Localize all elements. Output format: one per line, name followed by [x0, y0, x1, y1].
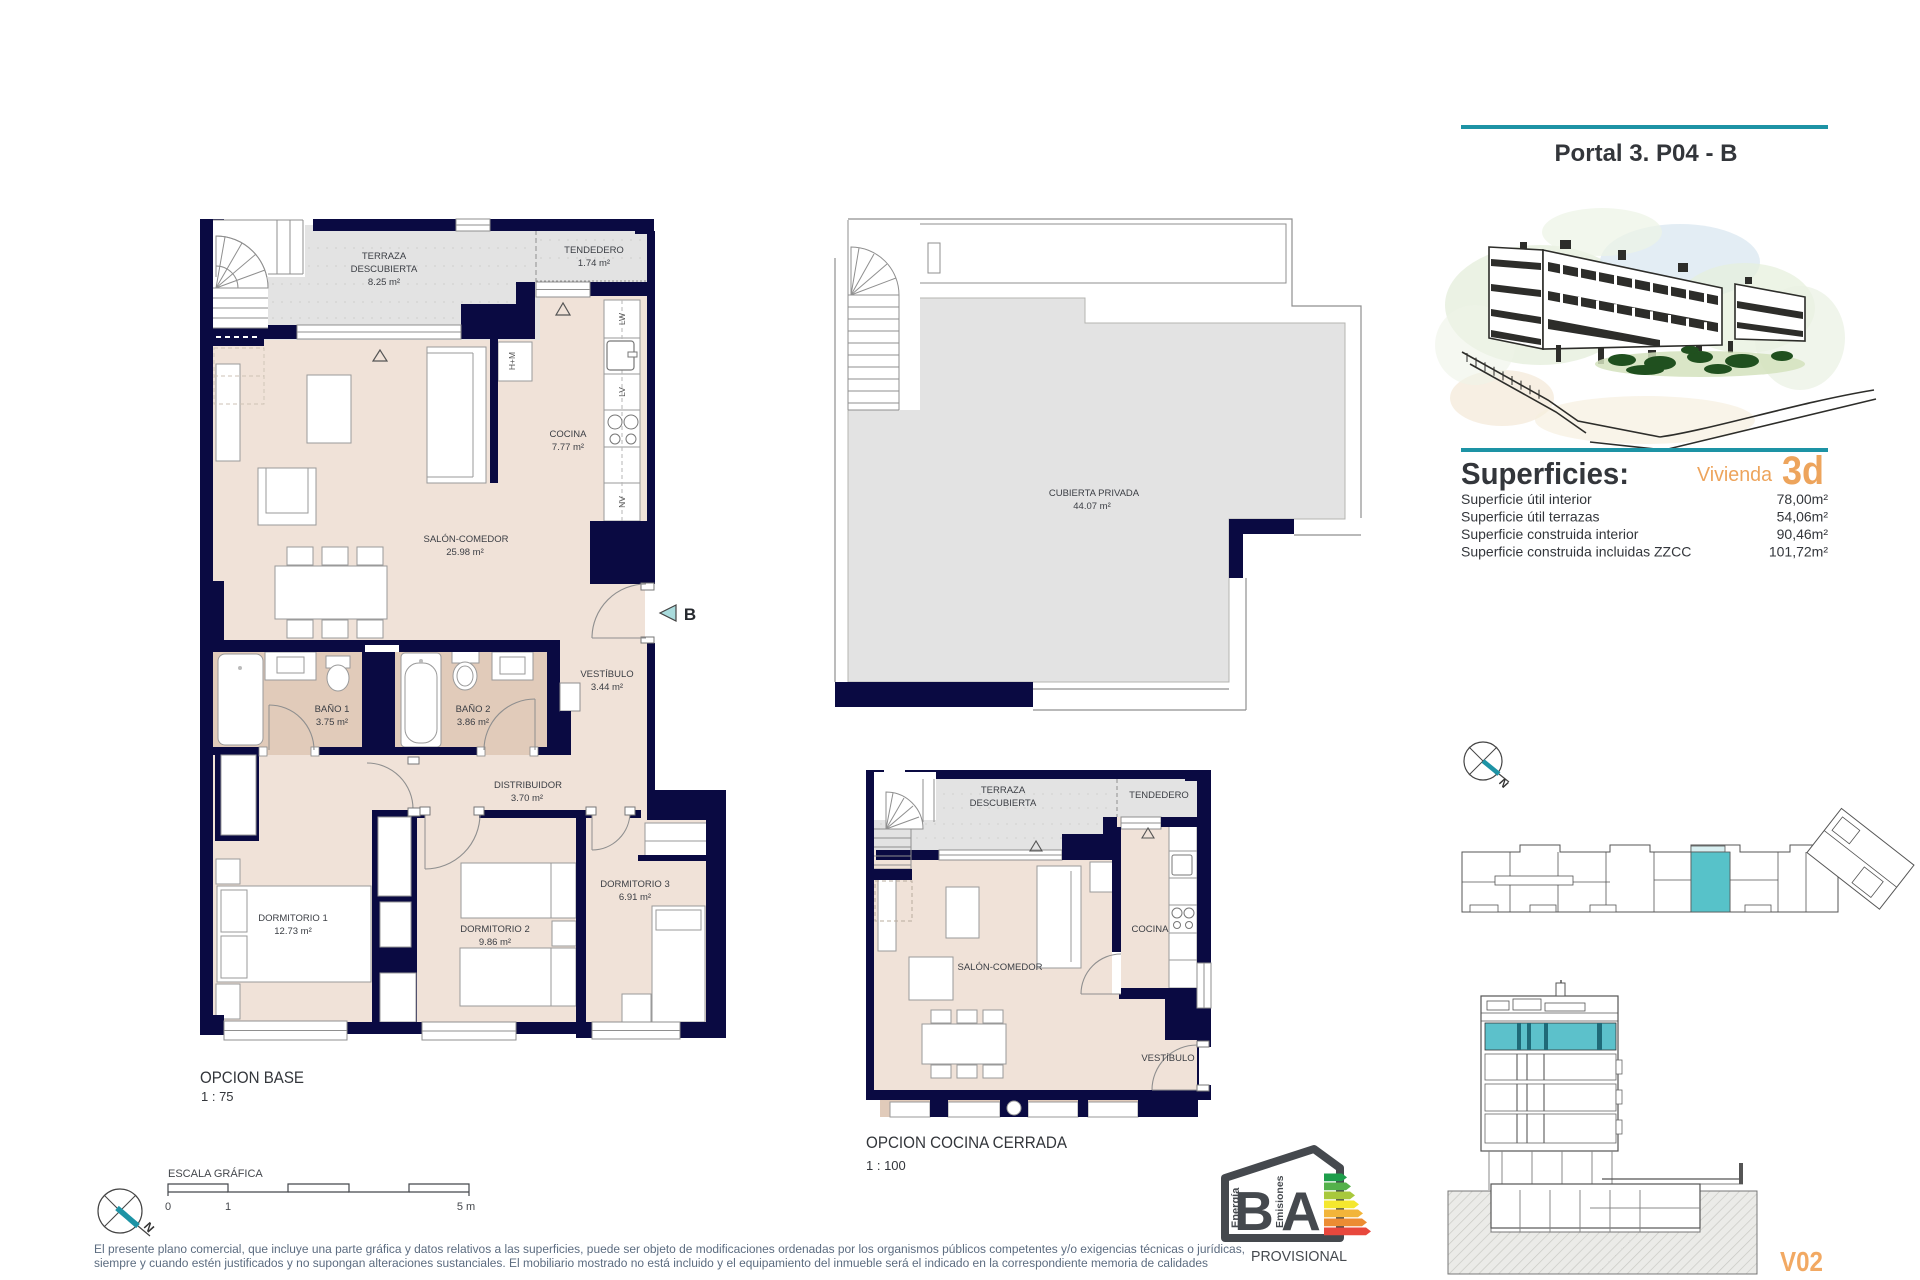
svg-text:3.75 m²: 3.75 m²: [316, 717, 348, 728]
svg-text:12.73 m²: 12.73 m²: [274, 926, 312, 937]
svg-text:ESCALA GRÁFICA: ESCALA GRÁFICA: [168, 1167, 263, 1180]
svg-text:8.25 m²: 8.25 m²: [368, 277, 400, 288]
svg-text:SALÓN-COMEDOR: SALÓN-COMEDOR: [958, 962, 1043, 973]
svg-text:54,06m²: 54,06m²: [1777, 509, 1829, 525]
svg-text:OPCION BASE: OPCION BASE: [200, 1068, 304, 1087]
svg-text:Energía: Energía: [1230, 1187, 1242, 1228]
svg-text:COCINA: COCINA: [1132, 924, 1170, 935]
svg-text:COCINA: COCINA: [550, 429, 588, 440]
svg-text:9.86 m²: 9.86 m²: [479, 937, 511, 948]
svg-text:1 : 75: 1 : 75: [201, 1089, 234, 1104]
svg-text:Superficie construida incluida: Superficie construida incluidas ZZCC: [1461, 544, 1691, 560]
svg-text:Emisiones: Emisiones: [1274, 1175, 1286, 1228]
svg-text:1.74 m²: 1.74 m²: [578, 258, 610, 269]
svg-text:DESCUBIERTA: DESCUBIERTA: [970, 798, 1037, 809]
svg-text:78,00m²: 78,00m²: [1777, 491, 1829, 507]
svg-text:1: 1: [225, 1201, 231, 1213]
svg-text:DORMITORIO 1: DORMITORIO 1: [258, 913, 328, 924]
svg-text:TERRAZA: TERRAZA: [981, 785, 1026, 796]
svg-text:101,72m²: 101,72m²: [1769, 544, 1828, 560]
svg-text:TENDEDERO: TENDEDERO: [564, 245, 624, 256]
svg-text:0: 0: [165, 1201, 171, 1213]
svg-text:3.44 m²: 3.44 m²: [591, 682, 623, 693]
svg-text:SALÓN-COMEDOR: SALÓN-COMEDOR: [424, 534, 509, 545]
svg-text:V02: V02: [1780, 1246, 1823, 1277]
svg-text:LV: LV: [617, 387, 627, 397]
svg-text:NV: NV: [617, 496, 627, 508]
svg-text:BAÑO 2: BAÑO 2: [456, 704, 491, 715]
svg-text:44.07 m²: 44.07 m²: [1073, 501, 1111, 512]
svg-text:H+M: H+M: [507, 352, 517, 370]
svg-text:TERRAZA: TERRAZA: [362, 251, 407, 262]
svg-text:DESCUBIERTA: DESCUBIERTA: [351, 264, 418, 275]
svg-text:DISTRIBUIDOR: DISTRIBUIDOR: [494, 780, 562, 791]
svg-text:3d: 3d: [1782, 449, 1824, 493]
svg-text:25.98 m²: 25.98 m²: [446, 547, 484, 558]
svg-text:PROVISIONAL: PROVISIONAL: [1251, 1248, 1347, 1265]
svg-text:3.86 m²: 3.86 m²: [457, 717, 489, 728]
svg-text:5 m: 5 m: [457, 1201, 475, 1213]
svg-text:LW: LW: [617, 313, 627, 325]
svg-text:siempre y cuando estén justifi: siempre y cuando estén justificados y no…: [94, 1256, 1208, 1270]
svg-text:El presente plano comercial, q: El presente plano comercial, que incluye…: [94, 1242, 1245, 1256]
svg-text:3.70 m²: 3.70 m²: [511, 793, 543, 804]
svg-text:Superficie útil interior: Superficie útil interior: [1461, 491, 1592, 507]
svg-text:Portal 3. P04 - B: Portal 3. P04 - B: [1555, 140, 1738, 167]
svg-text:BAÑO 1: BAÑO 1: [315, 704, 350, 715]
svg-text:VESTÍBULO: VESTÍBULO: [580, 669, 633, 680]
svg-text:TENDEDERO: TENDEDERO: [1129, 790, 1189, 801]
svg-text:Superficie construida interior: Superficie construida interior: [1461, 526, 1639, 542]
svg-text:90,46m²: 90,46m²: [1777, 526, 1829, 542]
svg-text:Vivienda: Vivienda: [1697, 464, 1773, 486]
svg-text:CUBIERTA PRIVADA: CUBIERTA PRIVADA: [1049, 488, 1140, 499]
svg-text:DORMITORIO 3: DORMITORIO 3: [600, 879, 670, 890]
svg-text:A: A: [1281, 1180, 1321, 1242]
svg-text:7.77 m²: 7.77 m²: [552, 442, 584, 453]
svg-text:DORMITORIO 2: DORMITORIO 2: [460, 924, 530, 935]
svg-text:1 : 100: 1 : 100: [866, 1158, 906, 1173]
svg-text:Superficie útil terrazas: Superficie útil terrazas: [1461, 509, 1600, 525]
svg-text:OPCION COCINA CERRADA: OPCION COCINA CERRADA: [866, 1133, 1068, 1152]
svg-text:6.91 m²: 6.91 m²: [619, 892, 651, 903]
svg-text:Superficies:: Superficies:: [1461, 456, 1629, 491]
svg-text:VESTÍBULO: VESTÍBULO: [1141, 1053, 1194, 1064]
svg-text:B: B: [684, 605, 696, 624]
